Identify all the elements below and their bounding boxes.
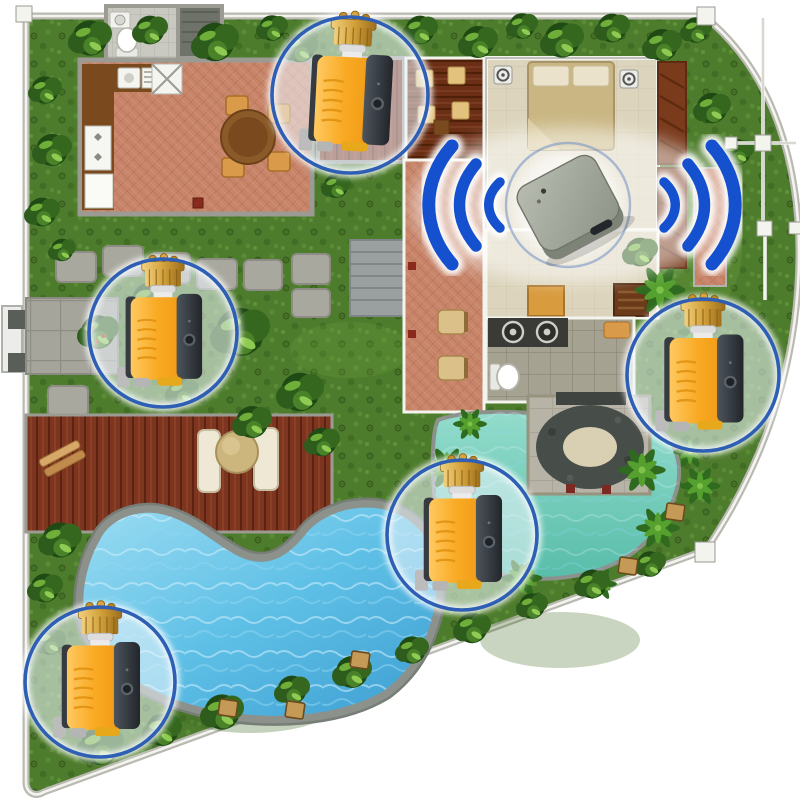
- bathroom-main: [486, 318, 634, 402]
- dresser: [528, 286, 564, 316]
- fence-post-topright: [697, 7, 715, 25]
- fence-post-corner: [695, 542, 715, 562]
- callout-valve-left[interactable]: [89, 254, 237, 407]
- toilet-main: [490, 364, 519, 390]
- fridge: [85, 174, 113, 208]
- stove: [85, 126, 111, 170]
- callout-valve-right[interactable]: [627, 293, 779, 451]
- callout-valve-pool[interactable]: [387, 454, 537, 610]
- callout-valve-bottom[interactable]: [25, 601, 175, 757]
- floorplan-svg: [0, 0, 800, 800]
- fence-post-topleft: [16, 6, 32, 22]
- wood-steps-pergola: [350, 240, 404, 316]
- callout-valve-top[interactable]: [272, 9, 428, 173]
- illustration-stage: [0, 0, 800, 800]
